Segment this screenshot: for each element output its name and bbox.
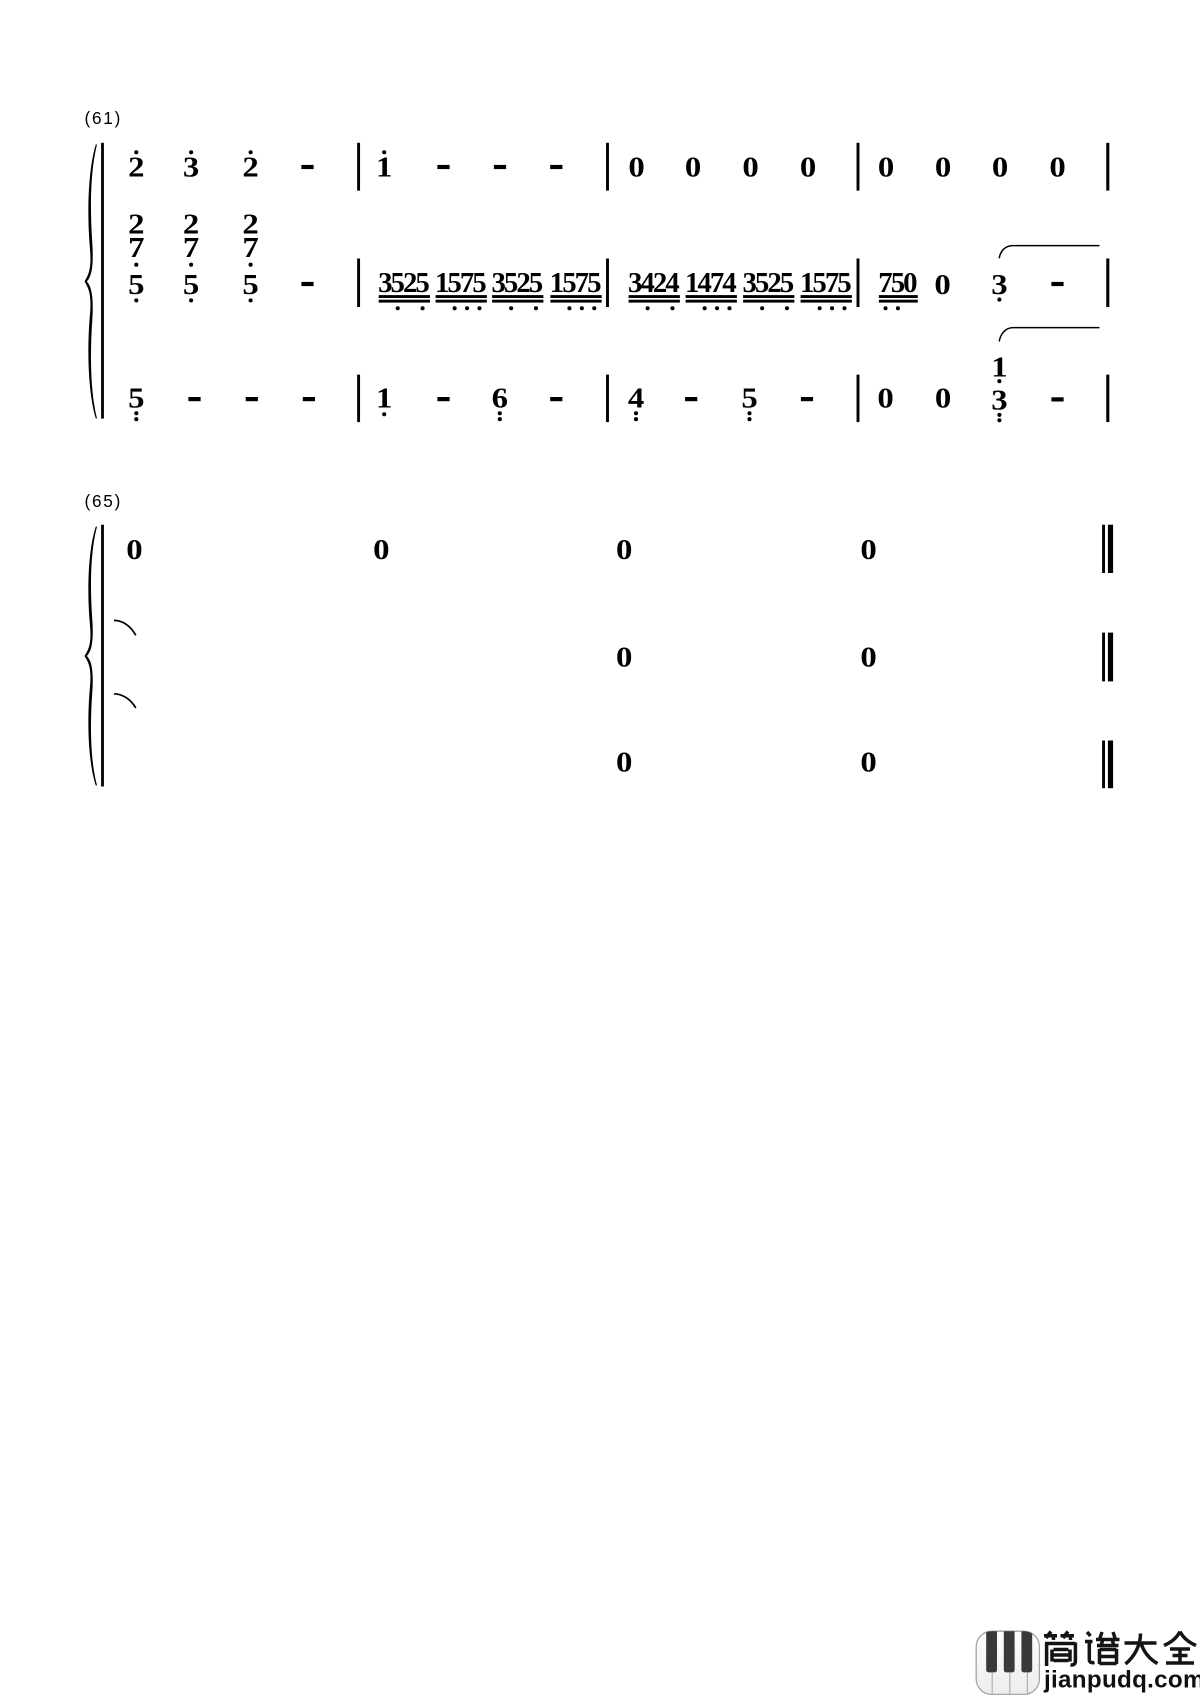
svg-text:5: 5 <box>128 269 144 300</box>
svg-text:0: 0 <box>877 383 893 414</box>
svg-text:5: 5 <box>529 268 543 299</box>
svg-text:5: 5 <box>183 269 199 300</box>
svg-text:0: 0 <box>878 151 894 182</box>
svg-text:5: 5 <box>780 268 794 299</box>
svg-text:0: 0 <box>616 747 632 778</box>
svg-text:jianpudq.com: jianpudq.com <box>1043 1667 1200 1694</box>
svg-text:0: 0 <box>934 269 950 300</box>
svg-text:0: 0 <box>685 151 701 182</box>
svg-text:0: 0 <box>903 268 917 299</box>
svg-text:0: 0 <box>373 534 389 565</box>
svg-text:2: 2 <box>242 151 258 182</box>
svg-text:1: 1 <box>991 351 1007 382</box>
svg-text:2: 2 <box>128 151 144 182</box>
svg-text:0: 0 <box>935 151 951 182</box>
svg-text:4: 4 <box>628 383 644 414</box>
svg-text:0: 0 <box>742 151 758 182</box>
svg-text:7: 7 <box>128 232 144 263</box>
svg-text:7: 7 <box>242 232 258 263</box>
svg-text:0: 0 <box>616 534 632 565</box>
svg-text:5: 5 <box>837 268 851 299</box>
svg-text:7: 7 <box>183 232 199 263</box>
svg-text:5: 5 <box>587 268 601 299</box>
svg-text:4: 4 <box>722 268 736 299</box>
svg-text:5: 5 <box>415 268 429 299</box>
svg-text:0: 0 <box>860 642 876 673</box>
svg-text:5: 5 <box>741 383 757 414</box>
svg-text:0: 0 <box>800 151 816 182</box>
svg-text:(65): (65) <box>85 491 123 511</box>
svg-text:0: 0 <box>935 383 951 414</box>
svg-text:5: 5 <box>242 269 258 300</box>
svg-text:0: 0 <box>1049 151 1065 182</box>
svg-text:0: 0 <box>860 534 876 565</box>
svg-text:5: 5 <box>128 383 144 414</box>
svg-text:6: 6 <box>492 383 508 414</box>
svg-text:0: 0 <box>628 151 644 182</box>
svg-text:3: 3 <box>991 384 1007 415</box>
svg-text:0: 0 <box>860 747 876 778</box>
svg-text:0: 0 <box>992 151 1008 182</box>
svg-text:1: 1 <box>376 151 392 182</box>
svg-text:1: 1 <box>376 383 392 414</box>
svg-text:3: 3 <box>991 269 1007 300</box>
svg-text:3: 3 <box>183 151 199 182</box>
svg-text:4: 4 <box>665 268 679 299</box>
svg-text:0: 0 <box>126 534 142 565</box>
svg-text:(61): (61) <box>85 108 123 128</box>
svg-text:0: 0 <box>616 642 632 673</box>
svg-text:5: 5 <box>472 268 486 299</box>
